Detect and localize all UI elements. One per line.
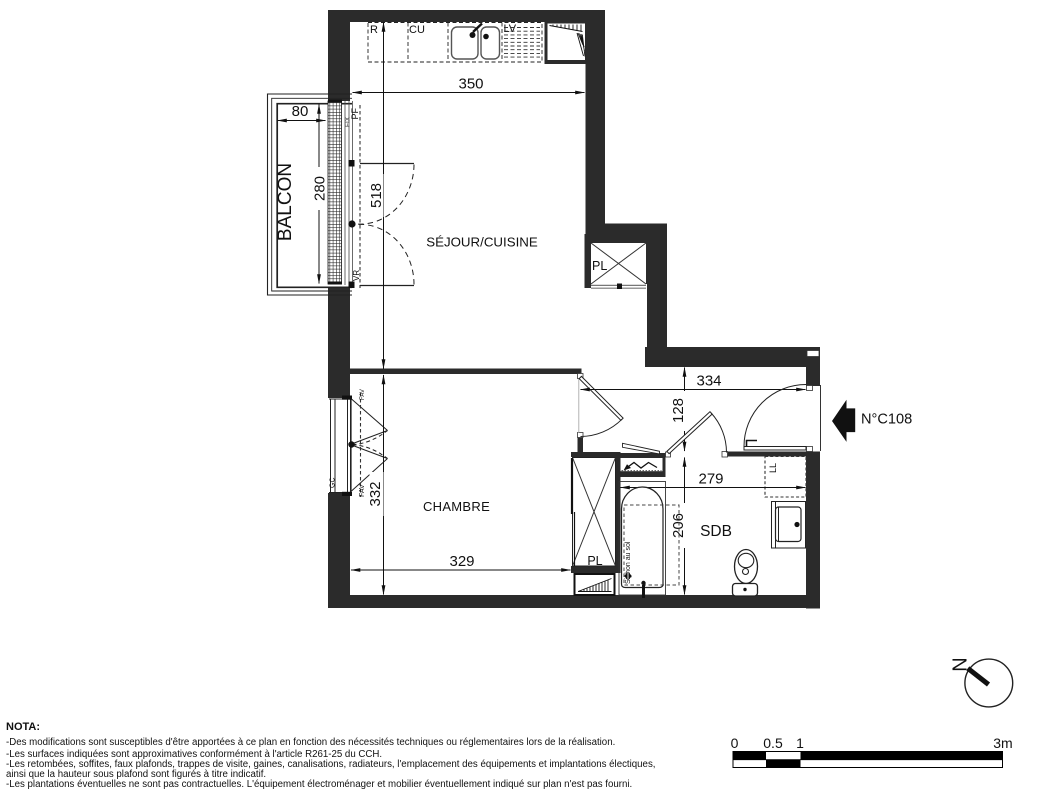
- svg-text:3m: 3m: [993, 735, 1012, 751]
- svg-text:LV: LV: [504, 23, 517, 35]
- svg-text:0.5: 0.5: [763, 735, 783, 751]
- svg-text:329: 329: [449, 553, 474, 570]
- svg-text:SDB: SDB: [700, 523, 732, 540]
- svg-text:-Les surfaces indiquées sont a: -Les surfaces indiquées sont approximati…: [6, 749, 382, 760]
- svg-text:GC: GC: [330, 478, 337, 489]
- svg-text:-Des modifications sont suscep: -Des modifications sont susceptibles d'ê…: [6, 737, 615, 748]
- svg-text:VR: VR: [352, 270, 361, 281]
- svg-text:R: R: [370, 24, 378, 36]
- svg-text:CHAMBRE: CHAMBRE: [423, 499, 490, 514]
- svg-text:N: N: [950, 657, 972, 671]
- svg-text:FAV: FAV: [360, 389, 366, 400]
- svg-text:350: 350: [458, 76, 483, 93]
- svg-text:LL: LL: [768, 463, 778, 473]
- svg-text:1: 1: [796, 735, 804, 751]
- svg-text:279: 279: [698, 471, 723, 488]
- svg-text:80: 80: [292, 103, 309, 120]
- svg-text:332: 332: [367, 481, 384, 506]
- svg-text:NOTA:: NOTA:: [6, 721, 40, 733]
- svg-text:PF: PF: [350, 108, 360, 120]
- svg-text:-Les plantations éventuelles n: -Les plantations éventuelles ne sont pas…: [6, 779, 632, 790]
- svg-text:280: 280: [312, 176, 329, 201]
- svg-text:128: 128: [670, 398, 687, 423]
- svg-text:PL: PL: [587, 554, 602, 568]
- svg-text:BALCON: BALCON: [275, 163, 296, 241]
- svg-text:0: 0: [731, 735, 739, 751]
- svg-text:SÉJOUR/CUISINE: SÉJOUR/CUISINE: [426, 235, 538, 250]
- svg-text:CU: CU: [409, 24, 425, 36]
- svg-text:FAV: FAV: [359, 484, 366, 497]
- svg-text:N°C108: N°C108: [861, 412, 912, 428]
- svg-text:518: 518: [368, 183, 385, 208]
- svg-text:334: 334: [696, 373, 721, 390]
- svg-text:PL: PL: [592, 259, 607, 273]
